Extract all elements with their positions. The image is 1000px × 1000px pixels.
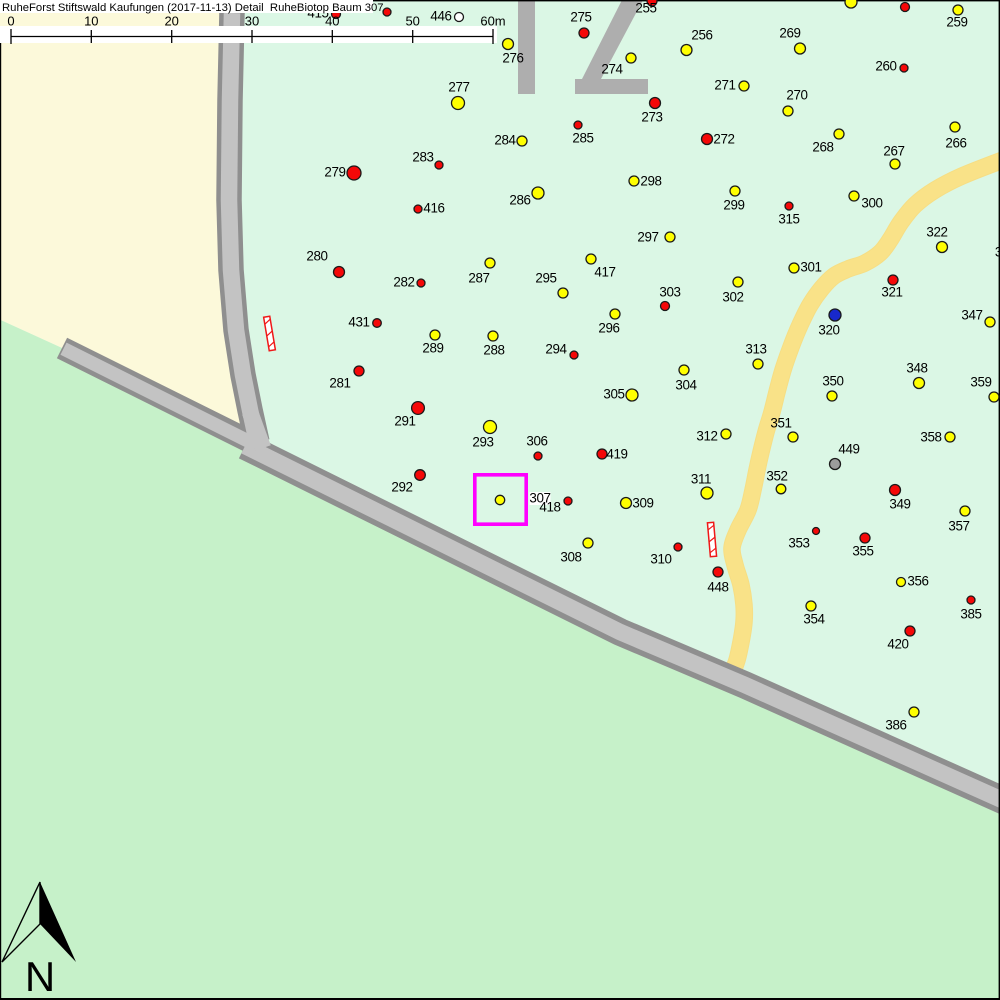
svg-text:416: 416 bbox=[423, 201, 444, 216]
svg-text:291: 291 bbox=[394, 414, 415, 429]
svg-text:256: 256 bbox=[691, 28, 712, 43]
svg-text:289: 289 bbox=[422, 341, 443, 356]
svg-text:284: 284 bbox=[494, 133, 516, 148]
svg-text:320: 320 bbox=[818, 323, 839, 338]
svg-text:359: 359 bbox=[970, 375, 991, 390]
svg-text:300: 300 bbox=[861, 196, 882, 211]
svg-text:0: 0 bbox=[7, 14, 14, 29]
svg-text:321: 321 bbox=[881, 285, 902, 300]
svg-text:293: 293 bbox=[472, 435, 493, 450]
svg-text:308: 308 bbox=[560, 550, 581, 565]
svg-text:298: 298 bbox=[640, 174, 661, 189]
svg-text:306: 306 bbox=[526, 434, 547, 449]
svg-text:269: 269 bbox=[779, 26, 800, 41]
svg-text:313: 313 bbox=[745, 342, 766, 357]
svg-text:272: 272 bbox=[713, 132, 734, 147]
svg-text:311: 311 bbox=[691, 472, 711, 487]
svg-text:349: 349 bbox=[889, 497, 910, 512]
svg-text:420: 420 bbox=[887, 637, 908, 652]
svg-text:277: 277 bbox=[448, 80, 469, 95]
svg-text:448: 448 bbox=[707, 580, 728, 595]
svg-text:283: 283 bbox=[412, 150, 433, 165]
svg-text:355: 355 bbox=[852, 544, 873, 559]
svg-text:259: 259 bbox=[946, 15, 967, 30]
svg-text:358: 358 bbox=[920, 430, 941, 445]
svg-text:267: 267 bbox=[883, 144, 904, 159]
svg-text:281: 281 bbox=[329, 376, 350, 391]
svg-text:301: 301 bbox=[800, 260, 821, 275]
svg-text:280: 280 bbox=[306, 249, 327, 264]
svg-text:305: 305 bbox=[603, 387, 624, 402]
svg-text:350: 350 bbox=[822, 374, 843, 389]
svg-text:419: 419 bbox=[606, 447, 627, 462]
svg-text:417: 417 bbox=[594, 265, 615, 280]
svg-text:354: 354 bbox=[803, 612, 825, 627]
svg-text:357: 357 bbox=[948, 519, 969, 534]
svg-text:40: 40 bbox=[325, 14, 339, 29]
svg-text:288: 288 bbox=[483, 343, 504, 358]
svg-text:276: 276 bbox=[502, 51, 523, 66]
svg-text:285: 285 bbox=[572, 131, 593, 146]
svg-text:351: 351 bbox=[770, 416, 791, 431]
svg-text:271: 271 bbox=[714, 78, 735, 93]
svg-text:303: 303 bbox=[659, 285, 680, 300]
svg-text:322: 322 bbox=[926, 225, 947, 240]
svg-text:297: 297 bbox=[637, 230, 658, 245]
svg-text:296: 296 bbox=[598, 321, 619, 336]
svg-text:287: 287 bbox=[468, 271, 489, 286]
svg-text:268: 268 bbox=[812, 140, 833, 155]
svg-text:348: 348 bbox=[906, 361, 927, 376]
svg-text:347: 347 bbox=[961, 308, 982, 323]
svg-text:34: 34 bbox=[995, 245, 1000, 260]
svg-text:304: 304 bbox=[675, 378, 697, 393]
svg-text:299: 299 bbox=[723, 198, 744, 213]
svg-text:310: 310 bbox=[650, 552, 671, 567]
svg-text:10: 10 bbox=[84, 14, 98, 29]
svg-text:50: 50 bbox=[405, 14, 419, 29]
svg-text:356: 356 bbox=[907, 574, 928, 589]
svg-text:255: 255 bbox=[635, 1, 656, 16]
svg-text:294: 294 bbox=[545, 342, 567, 357]
svg-text:30: 30 bbox=[245, 14, 259, 29]
svg-text:275: 275 bbox=[570, 10, 591, 25]
svg-text:RuheForst Stiftswald Kaufungen: RuheForst Stiftswald Kaufungen (2017-11-… bbox=[2, 2, 384, 14]
svg-text:N: N bbox=[25, 953, 55, 1000]
svg-text:292: 292 bbox=[391, 480, 412, 495]
svg-text:312: 312 bbox=[696, 429, 717, 444]
svg-text:274: 274 bbox=[601, 62, 623, 77]
svg-text:418: 418 bbox=[539, 500, 560, 515]
svg-text:431: 431 bbox=[348, 315, 369, 330]
svg-text:315: 315 bbox=[778, 212, 799, 227]
svg-text:352: 352 bbox=[766, 469, 787, 484]
svg-text:60m: 60m bbox=[480, 14, 505, 29]
svg-text:309: 309 bbox=[632, 496, 653, 511]
svg-text:266: 266 bbox=[945, 136, 966, 151]
svg-text:273: 273 bbox=[641, 110, 662, 125]
svg-text:385: 385 bbox=[960, 607, 981, 622]
svg-text:353: 353 bbox=[788, 536, 809, 551]
svg-text:20: 20 bbox=[164, 14, 178, 29]
svg-text:449: 449 bbox=[838, 442, 859, 457]
svg-text:260: 260 bbox=[875, 59, 896, 74]
svg-text:386: 386 bbox=[885, 718, 906, 733]
svg-text:286: 286 bbox=[509, 193, 530, 208]
svg-text:279: 279 bbox=[324, 165, 345, 180]
svg-text:282: 282 bbox=[393, 275, 414, 290]
svg-text:270: 270 bbox=[786, 88, 807, 103]
svg-text:446: 446 bbox=[430, 9, 451, 24]
svg-text:302: 302 bbox=[722, 290, 743, 305]
svg-text:295: 295 bbox=[535, 271, 556, 286]
